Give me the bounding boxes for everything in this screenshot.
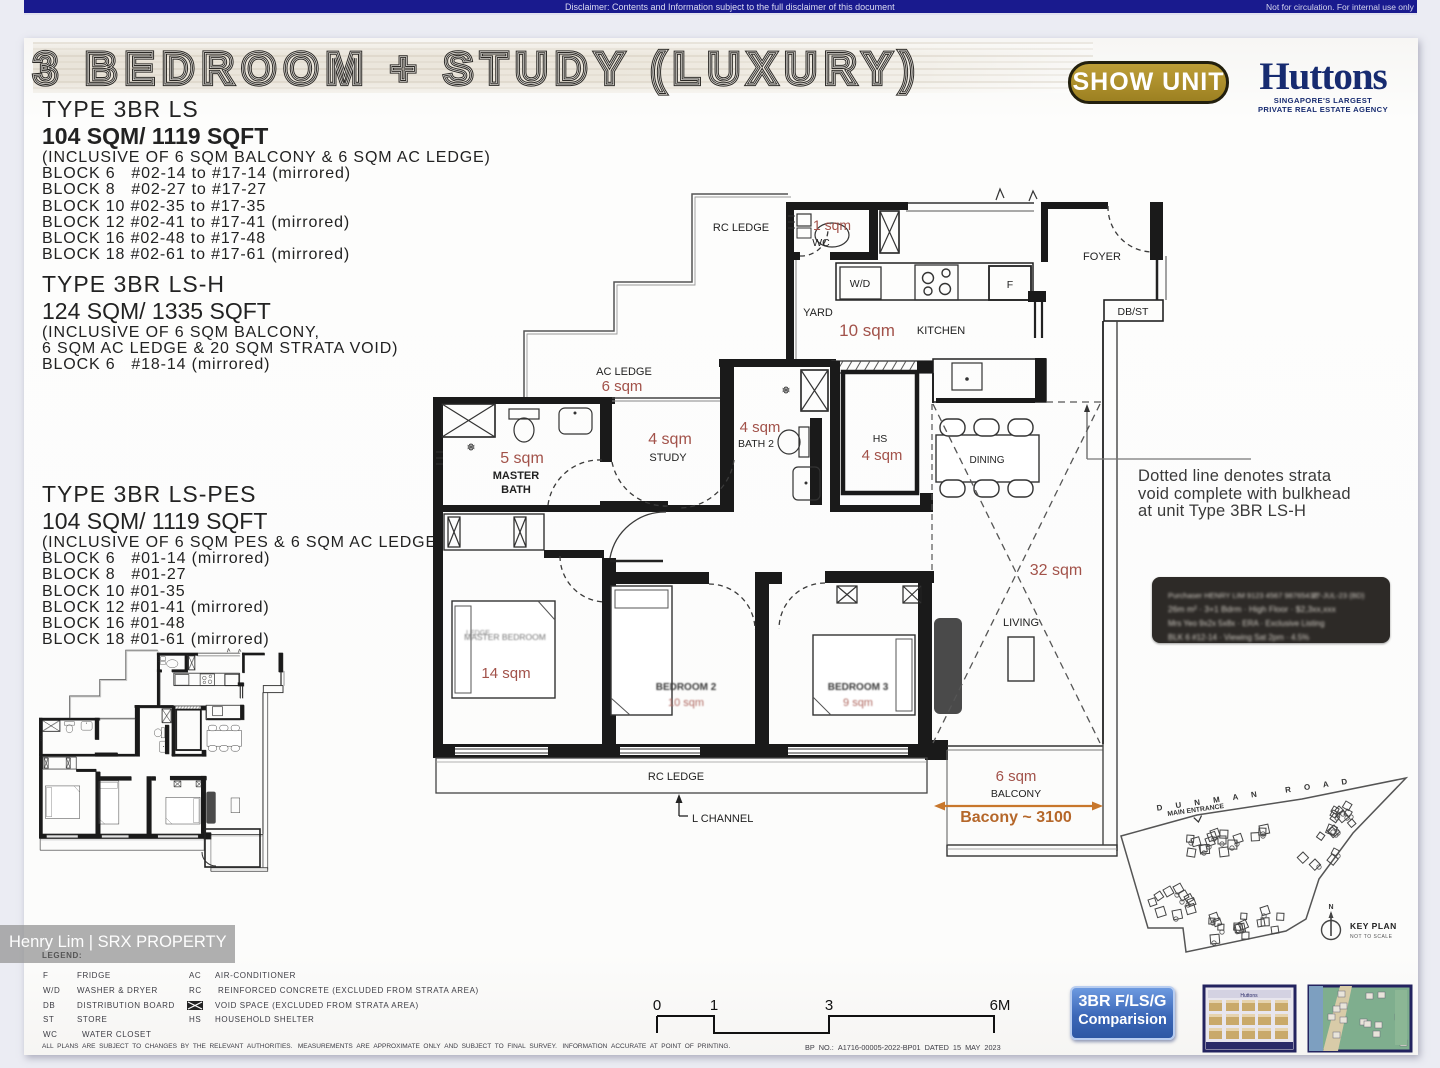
svg-text:N: N [1328,904,1333,911]
svg-text:9 sqm: 9 sqm [843,697,873,709]
svg-text:LEDGE: LEDGE [466,630,490,637]
svg-text:Purchaser HENRY LIM 9123 4567: Purchaser HENRY LIM 9123 4567 98765432 [1168,591,1318,600]
svg-text:6M: 6M [990,997,1011,1014]
svg-text:RC LEDGE: RC LEDGE [648,771,704,783]
svg-text:4 sqm: 4 sqm [740,419,781,436]
svg-text:❅: ❅ [781,385,790,397]
svg-text:KITCHEN: KITCHEN [917,325,965,337]
svg-text:AC LEDGE: AC LEDGE [596,366,652,378]
svg-text:STUDY: STUDY [649,452,687,464]
svg-text:BLK 6 #12-14 · Viewing Sat: BLK 6 #12-14 · Viewing Sat 2pm · 4.5% [1168,633,1309,642]
svg-text:WC: WC [812,237,830,249]
svg-text:1 sqm: 1 sqm [813,217,851,233]
svg-text:F: F [1007,279,1013,291]
svg-text:RC LEDGE: RC LEDGE [713,222,769,234]
svg-text:L CHANNEL: L CHANNEL [692,813,753,825]
svg-text:KEY PLAN: KEY PLAN [1350,921,1397,931]
svg-text:1: 1 [710,997,718,1014]
svg-text:Bacony ~ 3100: Bacony ~ 3100 [960,809,1072,826]
svg-text:0: 0 [653,997,661,1014]
svg-text:LIVING: LIVING [1003,617,1039,629]
svg-text:FOYER: FOYER [1083,251,1121,263]
svg-text:DB/ST: DB/ST [1118,306,1150,318]
svg-text:HS: HS [873,433,888,445]
svg-text:❅: ❅ [466,442,475,454]
svg-text:10 sqm: 10 sqm [839,321,895,340]
svg-text:10 sqm: 10 sqm [668,697,704,709]
svg-text:Mrs Yeo 9x2x 5x8x · ERA · Excl: Mrs Yeo 9x2x 5x8x · ERA · Exclusive List… [1168,619,1325,628]
svg-text:BATH 2: BATH 2 [738,438,774,450]
svg-text:27-JUL-23 (BD): 27-JUL-23 (BD) [1312,591,1365,600]
svg-text:BATH: BATH [501,484,531,496]
svg-text:NOT TO SCALE: NOT TO SCALE [1350,934,1393,940]
svg-text:4 sqm: 4 sqm [862,447,903,464]
svg-text:32 sqm: 32 sqm [1030,562,1082,579]
svg-text:6 sqm: 6 sqm [996,768,1037,785]
svg-text:BEDROOM 2: BEDROOM 2 [656,682,717,693]
svg-text:MASTER: MASTER [493,470,540,482]
svg-text:3 BEDROOM + STUDY (LUXURY): 3 BEDROOM + STUDY (LUXURY) [33,43,922,94]
svg-text:BEDROOM 3: BEDROOM 3 [828,682,889,693]
svg-text:26m m² · 3+1 Bdrm · High Floo: 26m m² · 3+1 Bdrm · High Floor · $2,3xx,… [1168,604,1337,614]
svg-text:5 sqm: 5 sqm [500,450,544,467]
svg-text:BALCONY: BALCONY [991,788,1041,800]
svg-text:3: 3 [825,997,833,1014]
svg-text:14 sqm: 14 sqm [481,665,530,682]
svg-text:W/D: W/D [850,278,871,290]
svg-text:DINING: DINING [970,455,1005,466]
svg-text:6 sqm: 6 sqm [602,378,643,395]
svg-text:4 sqm: 4 sqm [648,431,692,448]
svg-text:Huttons: Huttons [1240,993,1258,999]
svg-text:YARD: YARD [803,307,833,319]
